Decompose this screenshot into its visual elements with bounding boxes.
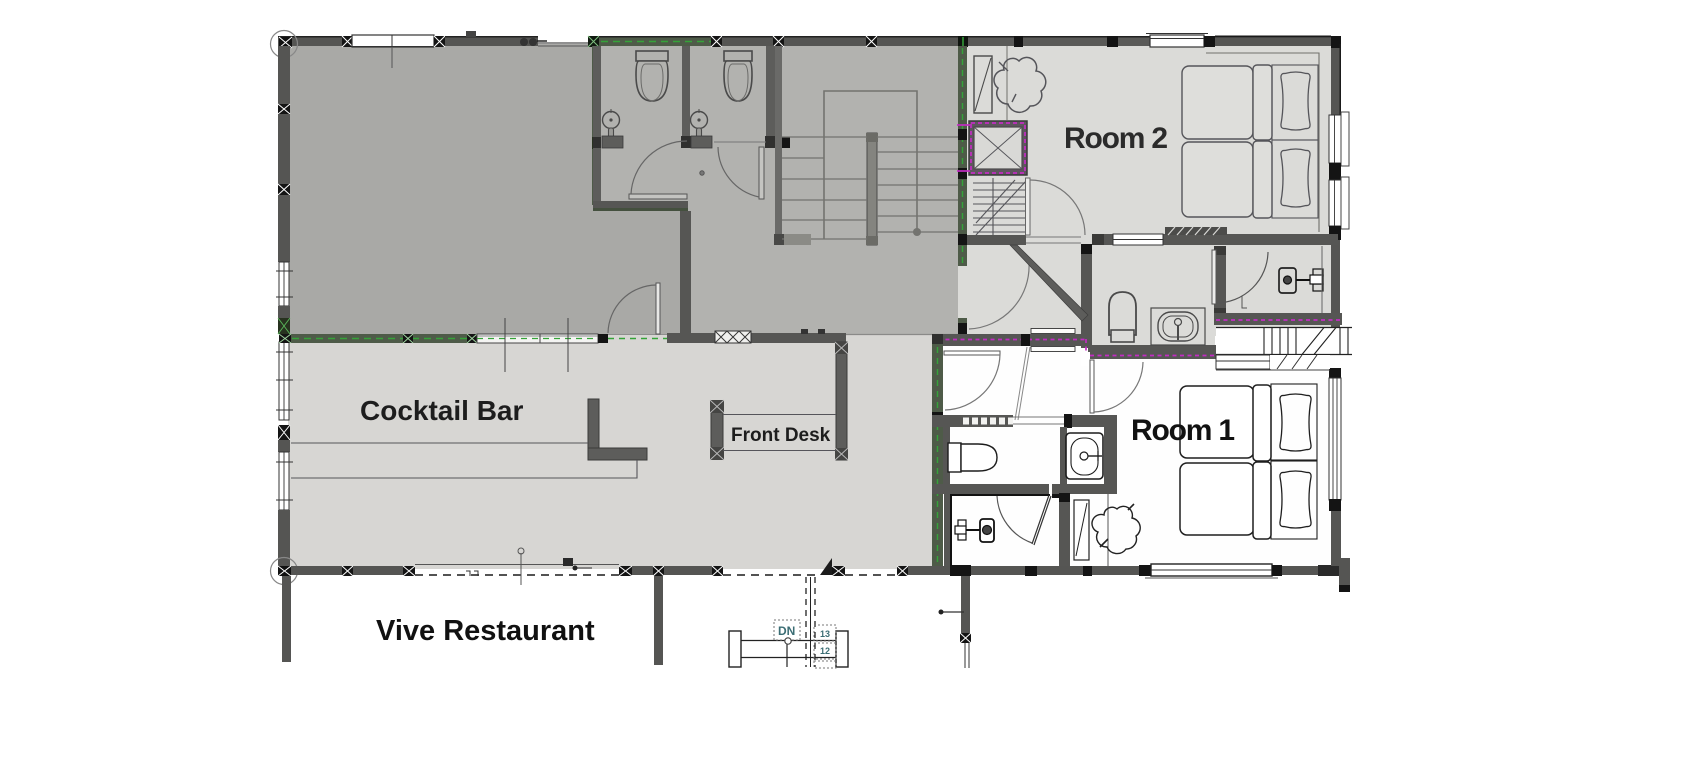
- svg-text:12: 12: [820, 646, 830, 656]
- svg-text:Cocktail Bar: Cocktail Bar: [360, 395, 523, 426]
- svg-text:Front Desk: Front Desk: [731, 425, 831, 446]
- svg-text:Room 2: Room 2: [1064, 122, 1167, 155]
- svg-text:Room 1: Room 1: [1131, 414, 1234, 447]
- svg-text:DN: DN: [778, 624, 795, 638]
- svg-text:13: 13: [820, 629, 830, 639]
- svg-text:Vive Restaurant: Vive Restaurant: [376, 615, 595, 647]
